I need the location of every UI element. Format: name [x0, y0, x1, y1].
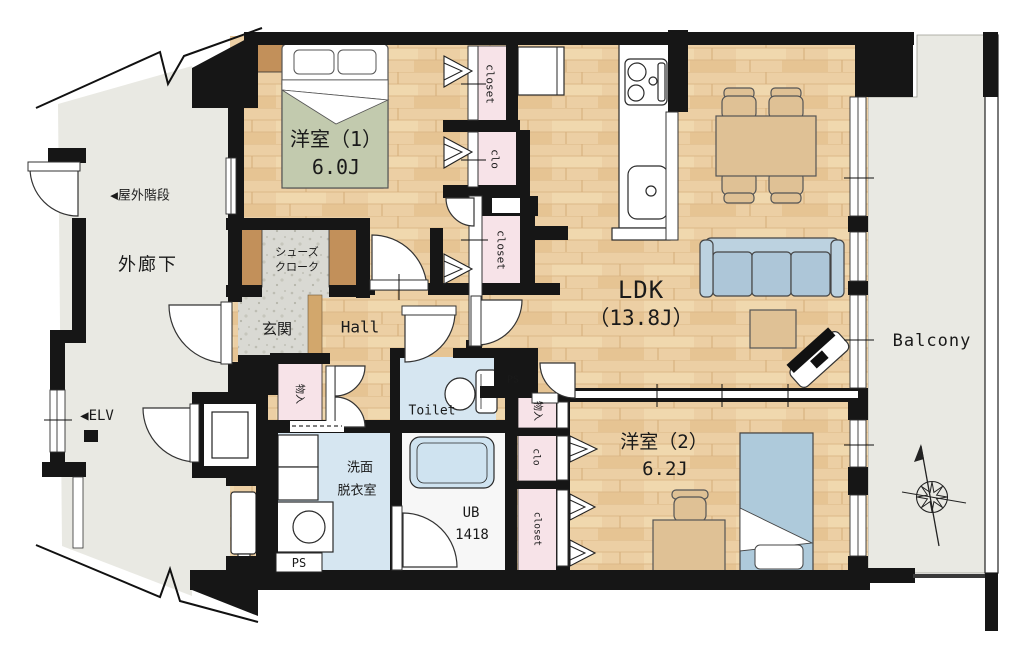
balcony-label: Balcony [893, 331, 972, 351]
room1-size: 6.0J [312, 155, 360, 179]
shoes-closet-label-2: クローク [275, 261, 319, 274]
washroom-label-2: 脱衣室 [337, 483, 376, 499]
ldk-label: LDK [618, 276, 664, 304]
bathtub [410, 437, 494, 488]
toilet-label: Toilet [409, 404, 456, 419]
storage-hall-label: 物入 [294, 384, 307, 404]
bath-size: 1418 [455, 527, 489, 543]
ldk-size: （13.8J） [588, 306, 693, 330]
balcony-railing [985, 35, 998, 573]
washing-machine [277, 502, 333, 552]
entrance-step [308, 295, 322, 362]
outdoor-stairs-label: ◀屋外階段 [110, 189, 170, 204]
room2-label: 洋室（2） [620, 431, 707, 453]
balcony-floor [868, 35, 985, 573]
room2-size: 6.2J [642, 458, 688, 480]
room1-corner-cabinet [257, 44, 283, 72]
sofa [700, 238, 844, 297]
closet-hall-label: closet [495, 230, 508, 270]
dining-table [716, 116, 816, 176]
clo-room2-label: clo [531, 448, 542, 465]
bath-label: UB [463, 505, 480, 521]
elevator-label: ◀ELV [80, 408, 114, 424]
closet-room1-top-label: closet [484, 64, 497, 104]
entrance-label: 玄関 [262, 320, 292, 338]
room1-label: 洋室（1） [290, 127, 382, 151]
corridor-label: 外廊下 [118, 255, 178, 276]
sink-icon [628, 166, 668, 219]
corridor-railing [73, 477, 83, 548]
refrigerator-space [518, 47, 564, 95]
hall-label: Hall [341, 318, 380, 337]
kitchen-counter [612, 44, 670, 240]
single-bed [740, 433, 813, 573]
vanity [278, 435, 318, 500]
closet-room2-label: closet [532, 512, 543, 546]
ps-lower-label: PS [292, 556, 306, 570]
washroom-label-1: 洗面 [347, 461, 373, 476]
water-heater [231, 492, 256, 560]
stove-icon [625, 59, 667, 105]
floor-plan: 洋室（1） 6.0J LDK （13.8J） 洋室（2） 6.2J Balcon… [0, 0, 1024, 652]
coffee-table [750, 310, 796, 348]
shoes-cabinet-right [329, 228, 358, 287]
storage-room2-label: 物入 [532, 401, 545, 421]
shoes-closet-label-1: シューズ [275, 245, 318, 259]
room1-west-window [226, 158, 236, 214]
floor-plan-canvas: 洋室（1） 6.0J LDK （13.8J） 洋室（2） 6.2J Balcon… [0, 0, 1024, 652]
clo-room1-label: clo [489, 149, 502, 169]
ps-upper-label: PS [507, 375, 519, 386]
